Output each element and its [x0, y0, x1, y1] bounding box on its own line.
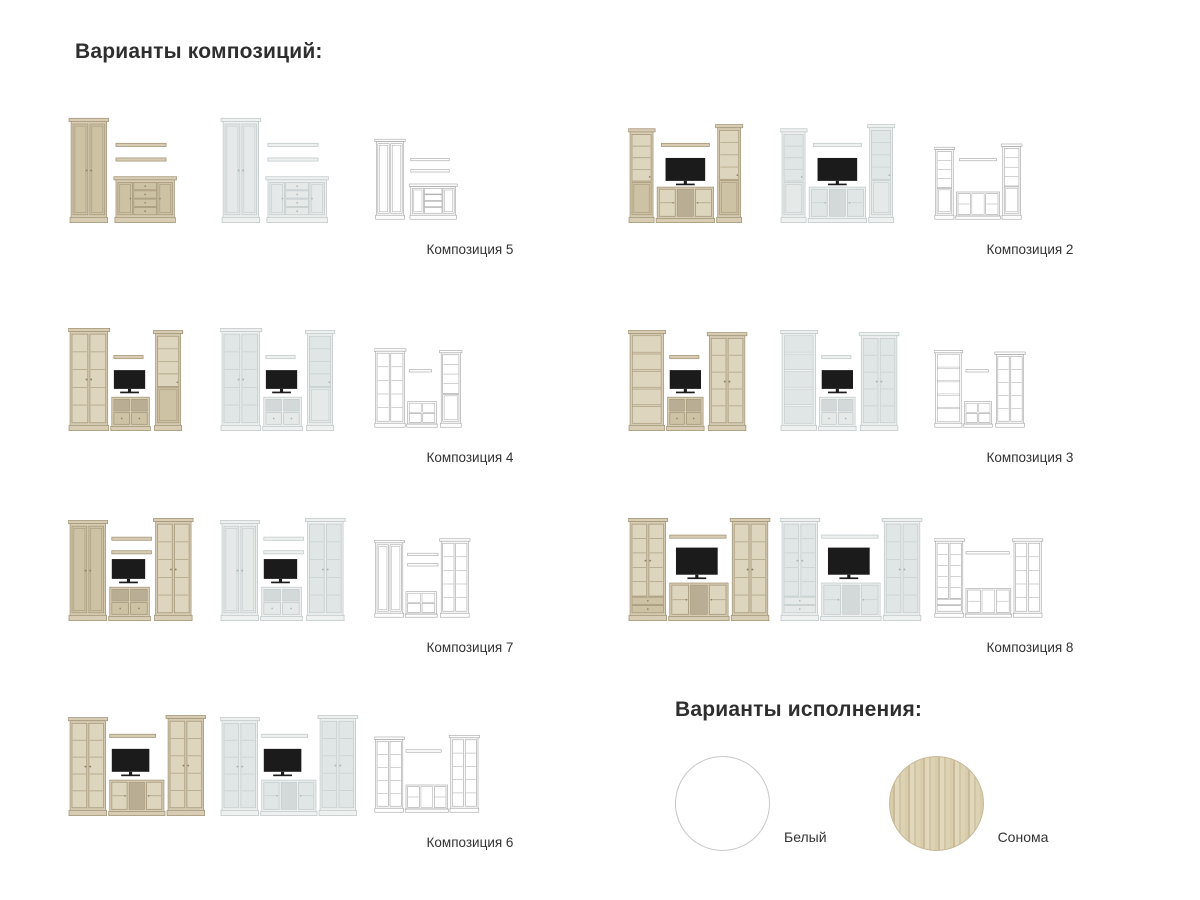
composition-6-white-render [220, 707, 366, 822]
composition-card-6: Композиция 6 [60, 701, 540, 871]
composition-card-5: Композиция 5 [60, 108, 540, 278]
composition-4-wireframe-drawing [374, 344, 486, 432]
composition-5-white-render [220, 114, 366, 229]
composition-7-white-render [220, 512, 366, 627]
composition-2-white-render [780, 114, 926, 229]
composition-card-7: Композиция 7 [60, 506, 540, 676]
finishes-heading: Варианты исполнения: [675, 698, 1155, 722]
composition-5-wireframe-drawing [374, 136, 486, 224]
composition-label: Композиция 2 [940, 242, 1120, 257]
finish-swatches: Белый Сонома [675, 756, 1155, 851]
composition-8-sonoma-render [628, 512, 774, 627]
composition-label: Композиция 4 [380, 450, 560, 465]
catalog-page: Варианты композиций: Композиция 5Компози… [0, 0, 1200, 900]
composition-3-sonoma-render [628, 322, 774, 437]
composition-3-wireframe-drawing [934, 344, 1046, 432]
composition-5-sonoma-render [68, 114, 214, 229]
finishes-section: Варианты исполнения: Белый Сонома [675, 698, 1155, 851]
compositions-heading: Варианты композиций: [75, 40, 323, 64]
composition-card-3: Композиция 3 [620, 316, 1100, 486]
composition-card-8: Композиция 8 [620, 506, 1100, 676]
composition-8-white-render [780, 512, 926, 627]
composition-label: Композиция 7 [380, 640, 560, 655]
white-finish-swatch-icon [675, 756, 770, 851]
composition-card-4: Композиция 4 [60, 316, 540, 486]
sonoma-finish-label: Сонома [998, 829, 1049, 851]
finish-option-sonoma: Сонома [889, 756, 1049, 851]
composition-3-white-render [780, 322, 926, 437]
sonoma-finish-swatch-icon [889, 756, 984, 851]
composition-2-wireframe-drawing [934, 136, 1046, 224]
composition-6-sonoma-render [68, 707, 214, 822]
composition-7-wireframe-drawing [374, 534, 486, 622]
composition-2-sonoma-render [628, 114, 774, 229]
composition-4-sonoma-render [68, 322, 214, 437]
composition-label: Композиция 5 [380, 242, 560, 257]
white-finish-label: Белый [784, 829, 827, 851]
composition-6-wireframe-drawing [374, 729, 486, 817]
composition-4-white-render [220, 322, 366, 437]
composition-label: Композиция 3 [940, 450, 1120, 465]
composition-label: Композиция 8 [940, 640, 1120, 655]
finish-option-white: Белый [675, 756, 827, 851]
composition-label: Композиция 6 [380, 835, 560, 850]
composition-7-sonoma-render [68, 512, 214, 627]
composition-card-2: Композиция 2 [620, 108, 1100, 278]
composition-8-wireframe-drawing [934, 534, 1046, 622]
